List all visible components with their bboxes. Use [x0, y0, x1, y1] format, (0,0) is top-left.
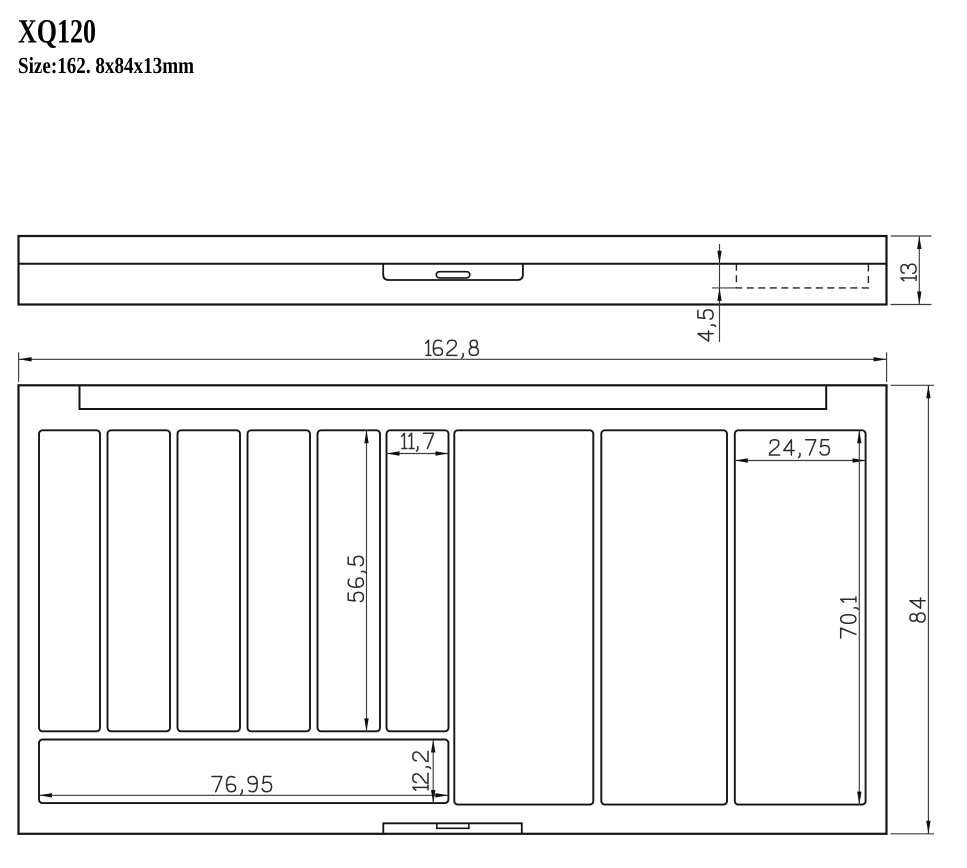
svg-text:Size:162. 8x84x13mm: Size:162. 8x84x13mm — [18, 53, 194, 78]
svg-text:XQ120: XQ120 — [18, 14, 96, 51]
